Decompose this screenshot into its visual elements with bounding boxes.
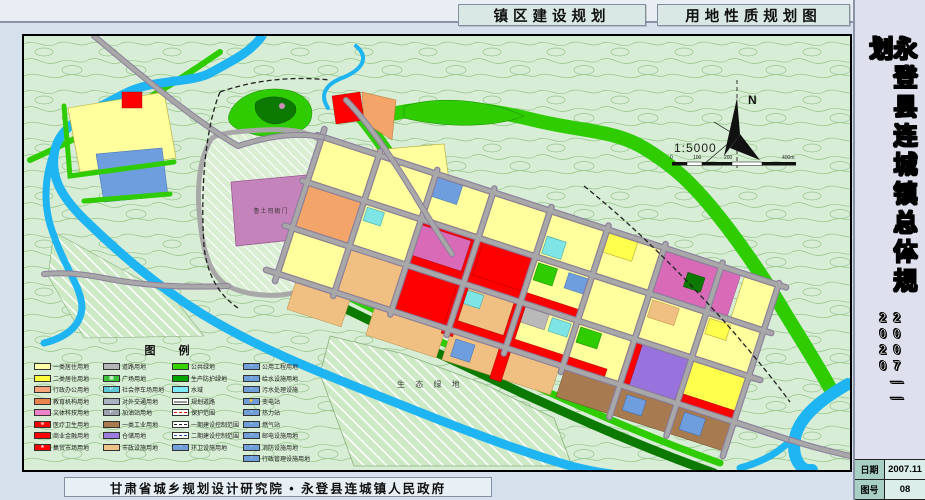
legend-swatch: ⚡ [243,398,260,405]
legend-swatch: ▫ [172,444,189,451]
legend-item: P 社会停车场用地 [103,384,168,396]
legend-item: 教育机构用地 [34,396,99,408]
legend-label: 医疗卫生用地 [53,420,89,429]
legend-label: 污水处理设施 [262,385,298,394]
plan-title-vertical: 永登县连城镇总体规划 [866,36,914,305]
sheet-number-value: 08 [885,480,925,499]
sheet-title-drawing: 用地性质规划图 [657,4,850,26]
scale-tick: 400m [782,155,795,161]
legend-item: 市政设施用地 [103,442,168,454]
legend-item: ▫ 行政管理设施用地 [243,453,310,465]
legend-columns: 一类居住用地 二类居住用地 行政办公用地 [34,361,310,465]
legend-label: 热力站 [262,408,280,417]
legend-label: 社会停车场用地 [122,385,164,394]
legend-swatch [103,432,120,439]
legend-item: 公共绿地 [172,361,239,373]
legend-item: ⚡ 变电站 [243,396,310,408]
legend-item: ▫ 邮电设施用地 [243,430,310,442]
legend-item: ▫ 消防设施用地 [243,442,310,454]
legend-item: 生产防护绿地 [172,373,239,385]
legend-swatch [172,421,189,428]
info-row-date: 日期 2007.11 [855,460,925,480]
scale-tick: 100 [693,155,702,161]
legend-swatch [172,398,189,405]
legend-swatch: ▫ [243,386,260,393]
legend-swatch: ★ [34,444,51,451]
legend-label: 加油站用地 [122,408,152,417]
legend-label: 道路用地 [122,362,146,371]
legend-item: ▫ 污水处理设施 [243,384,310,396]
legend-swatch [172,432,189,439]
legend-item: P 加油站用地 [103,407,168,419]
legend-item: ⊕ 医疗卫生用地 [34,419,99,431]
legend-item: 水域 [172,384,239,396]
scale-tick: 200 [724,155,733,161]
legend-label: 规划道路 [191,397,215,406]
historic-site-label: 鲁土司衙门 [253,207,288,215]
legend-swatch: ▫ [243,432,260,439]
info-table: 日期 2007.11 图号 08 [855,459,925,500]
legend-label: 对外交通用地 [122,397,158,406]
legend-swatch: ▫ [243,409,260,416]
legend-swatch [172,363,189,370]
date-value: 2007.11 [885,460,925,479]
sheet-title-series: 镇区建设规划 [458,4,646,26]
legend-label: 商业金融用地 [53,431,89,440]
legend-label: 邮电设施用地 [262,431,298,440]
legend-label: 生产防护绿地 [191,374,227,383]
legend-item: 一类工业用地 [103,419,168,431]
legend-label: 一类工业用地 [122,420,158,429]
legend-label: 市政设施用地 [122,443,158,452]
legend-item: 行政办公用地 [34,384,99,396]
legend-item: ▫ 热力站 [243,407,310,419]
scale-tick: 0 [670,155,673,161]
legend-item: 保护范围 [172,407,239,419]
legend-item: 二期建设控制范围 [172,430,239,442]
legend-item: 二类居住用地 [34,373,99,385]
legend-item: 道路用地 [103,361,168,373]
legend-title: 图 例 [34,342,310,358]
legend-label: 公共绿地 [191,362,215,371]
legend-label: 燃气站 [262,420,280,429]
legend-swatch [34,409,51,416]
legend-item: 文体科技用地 [34,407,99,419]
legend-label: 消防设施用地 [262,443,298,452]
eco-green-label: 生 态 绿 地 [397,379,464,389]
legend-item: 规划道路 [172,396,239,408]
legend-swatch: ▫ [243,375,260,382]
legend-item: 对外交通用地 [103,396,168,408]
title-block-panel: 永登县连城镇总体规划 2007——2020 日期 2007.11 图号 08 [853,0,925,500]
legend-label: 行政管理设施用地 [262,454,310,463]
legend-swatch: ⊕ [34,421,51,428]
legend-label: 行政办公用地 [53,385,89,394]
legend-swatch: ▦ [103,375,120,382]
legend-column: ▫ 公用工程用地 ▫ 给水设施用地 ▫ 污水处理设施 [243,361,310,465]
legend: 图 例 一类居住用地 二类居住用地 [34,342,310,465]
legend-label: 教育机构用地 [53,397,89,406]
north-label: N [748,93,757,107]
legend-label: 一期建设控制范围 [191,420,239,429]
legend-swatch [172,375,189,382]
legend-swatch [34,375,51,382]
legend-item: ▫ 公用工程用地 [243,361,310,373]
legend-swatch: ▫ [243,444,260,451]
legend-label: 给水设施用地 [262,374,298,383]
legend-item: ▫ 给水设施用地 [243,373,310,385]
legend-label: 环卫设施用地 [191,443,227,452]
legend-swatch: P [103,386,120,393]
scale-text: 1:5000 [674,141,717,155]
legend-swatch [34,432,51,439]
legend-swatch: P [103,409,120,416]
legend-label: 一类居住用地 [53,362,89,371]
legend-item: ▦ 广场用地 [103,373,168,385]
legend-swatch: ▫ [243,421,260,428]
legend-swatch [103,444,120,451]
legend-swatch [103,363,120,370]
legend-item: ▫ 燃气站 [243,419,310,431]
organization-bar: 甘肃省城乡规划设计研究院 • 永登县连城镇人民政府 [64,477,492,497]
legend-label: 公用工程用地 [262,362,298,371]
date-label: 日期 [855,460,885,479]
plan-period: 2007——2020 [876,311,904,459]
legend-item: 一类居住用地 [34,361,99,373]
legend-label: 广场用地 [122,374,146,383]
legend-item: ▫ 环卫设施用地 [172,442,239,454]
legend-label: 变电站 [262,397,280,406]
legend-label: 集贸市场用地 [53,443,89,452]
legend-swatch [103,421,120,428]
legend-column: 公共绿地 生产防护绿地 水域 [172,361,239,465]
legend-label: 二类居住用地 [53,374,89,383]
legend-label: 二期建设控制范围 [191,431,239,440]
sheet-number-label: 图号 [855,480,885,499]
legend-item: 仓储用地 [103,430,168,442]
legend-column: 道路用地 ▦ 广场用地 P 社会停车场用地 [103,361,168,465]
legend-label: 文体科技用地 [53,408,89,417]
legend-item: ★ 集贸市场用地 [34,442,99,454]
legend-item: 一期建设控制范围 [172,419,239,431]
legend-swatch: ▫ [243,455,260,462]
legend-swatch [34,363,51,370]
plan-sheet: 镇区建设规划 用地性质规划图 [0,0,925,500]
legend-label: 水域 [191,385,203,394]
legend-swatch: ▫ [243,363,260,370]
legend-swatch [172,409,189,416]
legend-swatch [172,386,189,393]
legend-swatch [34,386,51,393]
legend-label: 保护范围 [191,408,215,417]
info-row-number: 图号 08 [855,480,925,500]
legend-label: 仓储用地 [122,431,146,440]
legend-column: 一类居住用地 二类居住用地 行政办公用地 [34,361,99,465]
legend-swatch [103,398,120,405]
legend-item: 商业金融用地 [34,430,99,442]
legend-swatch [34,398,51,405]
map-frame: 鲁土司衙门 [22,34,852,472]
